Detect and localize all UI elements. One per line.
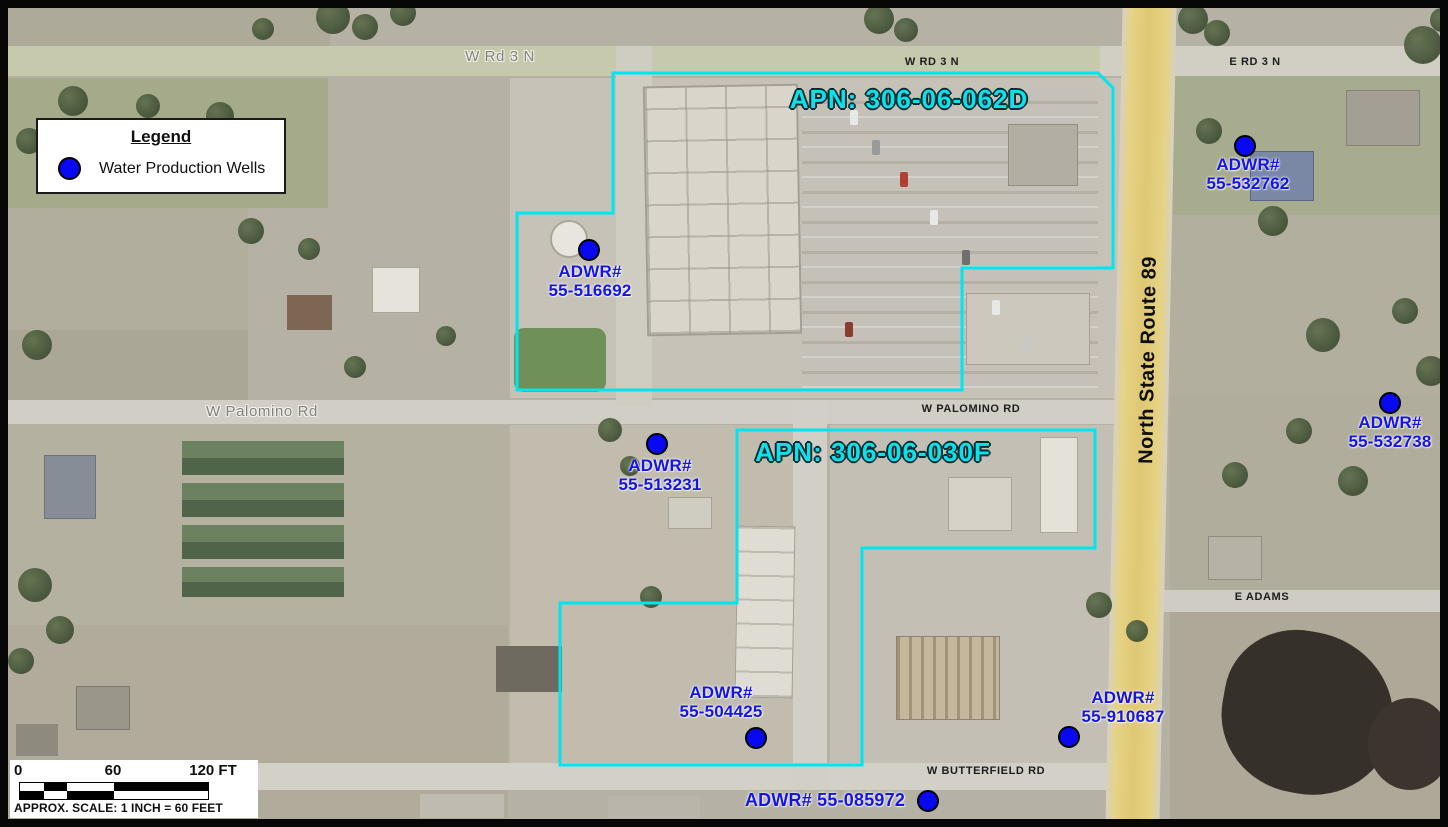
road-label-w-palomino-map: W Palomino Rd (172, 403, 352, 420)
map-building-green-barn (182, 483, 344, 517)
map-building (1008, 124, 1078, 186)
well-marker-55-085972[interactable] (917, 790, 939, 812)
scale-segment (114, 783, 208, 791)
map-tree (1286, 418, 1312, 444)
legend-item-label: Water Production Wells (99, 160, 265, 178)
map-building (1208, 536, 1262, 580)
scale-segment (20, 783, 44, 791)
map-building (668, 497, 712, 529)
well-label-line: 55-532738 (1320, 432, 1448, 451)
map-car (872, 140, 880, 155)
map-patch (0, 0, 330, 48)
map-tree (316, 0, 350, 34)
map-tree (1416, 356, 1446, 386)
well-label-line: ADWR# (1053, 688, 1193, 707)
map-tree (864, 4, 894, 34)
map-tree (22, 330, 52, 360)
scale-bar-row (20, 791, 208, 799)
scale-tick-mid: 60 (98, 762, 128, 779)
map-tree (1338, 466, 1368, 496)
map-tree (136, 94, 160, 118)
map-building (420, 794, 504, 818)
map-building-green-barn (182, 567, 344, 597)
map-building (496, 646, 562, 692)
road-label-e-adams: E ADAMS (1202, 591, 1322, 603)
scale-bar-box: 0 60 120 FT APPROX. SCALE: 1 INCH = 60 F… (10, 760, 258, 818)
map-tree (1430, 8, 1448, 32)
scale-segment (114, 791, 208, 799)
well-label-55-085972: ADWR# 55-085972 (740, 791, 910, 810)
map-tree (1196, 118, 1222, 144)
map-building-restaurant (896, 636, 1000, 720)
map-tree (58, 86, 88, 116)
scale-segment (44, 783, 68, 791)
scale-segment (67, 791, 114, 799)
map-building (608, 796, 700, 818)
well-label-55-910687: ADWR# 55-910687 (1053, 688, 1193, 726)
map-tree (1204, 20, 1230, 46)
map-patch (8, 208, 248, 330)
well-label-55-532762: ADWR# 55-532762 (1178, 155, 1318, 193)
map-tree (1306, 318, 1340, 352)
scale-bar-graphic (19, 782, 209, 800)
map-tree (1404, 26, 1442, 64)
map-building (76, 686, 130, 730)
map-tree (894, 18, 918, 42)
map-tree (8, 648, 34, 674)
well-label-line: ADWR# (1178, 155, 1318, 174)
map-building (287, 295, 332, 330)
map-tree (1086, 592, 1112, 618)
well-label-line: ADWR# 55-085972 (740, 791, 910, 810)
map-building (372, 267, 420, 313)
map-building (948, 477, 1012, 531)
map-car (900, 172, 908, 187)
map-tree (436, 326, 456, 346)
map-building (1346, 90, 1420, 146)
map-tree (344, 356, 366, 378)
well-label-55-516692: ADWR# 55-516692 (520, 262, 660, 300)
map-tree (18, 568, 52, 602)
map-tree (598, 418, 622, 442)
map-tree (640, 586, 662, 608)
map-lawn (514, 328, 606, 392)
apn-label-306-06-030f: APN: 306-06-030F (733, 437, 1013, 468)
well-label-line: ADWR# (520, 262, 660, 281)
well-marker-55-910687[interactable] (1058, 726, 1080, 748)
well-symbol-icon (58, 157, 81, 180)
map-tree (352, 14, 378, 40)
road-label-w-rd-3-n-map: W Rd 3 N (420, 48, 580, 65)
map-building-bigbox-store (643, 84, 802, 337)
well-marker-55-532738[interactable] (1379, 392, 1401, 414)
scale-segment (44, 791, 68, 799)
road-label-e-rd-3-n: E RD 3 N (1195, 56, 1315, 68)
well-label-line: ADWR# (651, 683, 791, 702)
well-label-line: 55-532762 (1178, 174, 1318, 193)
legend-title: Legend (38, 127, 284, 147)
well-label-55-504425: ADWR# 55-504425 (651, 683, 791, 721)
apn-label-306-06-062d: APN: 306-06-062D (769, 84, 1049, 115)
map-building (16, 724, 58, 756)
well-label-line: 55-516692 (520, 281, 660, 300)
scale-tick-end: 120 FT (180, 762, 246, 779)
scale-segment (20, 791, 44, 799)
road-label-w-palomino: W PALOMINO RD (891, 403, 1051, 415)
map-building (1040, 437, 1078, 533)
scale-caption: APPROX. SCALE: 1 INCH = 60 FEET (14, 801, 223, 815)
map-building (44, 455, 96, 519)
well-label-line: ADWR# (1320, 413, 1448, 432)
well-label-line: 55-504425 (651, 702, 791, 721)
map-dark-mound (1368, 698, 1448, 790)
well-label-55-532738: ADWR# 55-532738 (1320, 413, 1448, 451)
legend-box: Legend Water Production Wells (36, 118, 286, 194)
map-building-green-barn (182, 441, 344, 475)
scale-tick-start: 0 (14, 762, 22, 779)
road-label-w-rd-3-n: W RD 3 N (872, 56, 992, 68)
legend-item: Water Production Wells (58, 157, 284, 180)
map-car (845, 322, 853, 337)
map-building (966, 293, 1090, 365)
map-tree (46, 616, 74, 644)
map-car (930, 210, 938, 225)
map-tree (1392, 298, 1418, 324)
map-tree (1222, 462, 1248, 488)
map-car (962, 250, 970, 265)
well-label-line: ADWR# (590, 456, 730, 475)
scale-segment (67, 783, 114, 791)
aerial-map: W Rd 3 N W RD 3 N E RD 3 N W Palomino Rd… (0, 0, 1448, 827)
well-marker-55-513231[interactable] (646, 433, 668, 455)
map-building-strip-mall (735, 526, 796, 699)
map-building-green-barn (182, 525, 344, 559)
well-marker-55-532762[interactable] (1234, 135, 1256, 157)
well-label-55-513231: ADWR# 55-513231 (590, 456, 730, 494)
well-label-line: 55-513231 (590, 475, 730, 494)
road-label-north-state-route-89: North State Route 89 (1134, 240, 1162, 480)
map-tree (252, 18, 274, 40)
map-car (992, 300, 1000, 315)
map-tree (238, 218, 264, 244)
map-tree (298, 238, 320, 260)
road-label-w-butterfield: W BUTTERFIELD RD (896, 765, 1076, 777)
map-tree (390, 0, 416, 26)
map-car (1022, 338, 1030, 353)
map-tree (1258, 206, 1288, 236)
well-label-line: 55-910687 (1053, 707, 1193, 726)
well-marker-55-504425[interactable] (745, 727, 767, 749)
well-marker-55-516692[interactable] (578, 239, 600, 261)
map-tree (1126, 620, 1148, 642)
scale-bar-row (20, 783, 208, 791)
